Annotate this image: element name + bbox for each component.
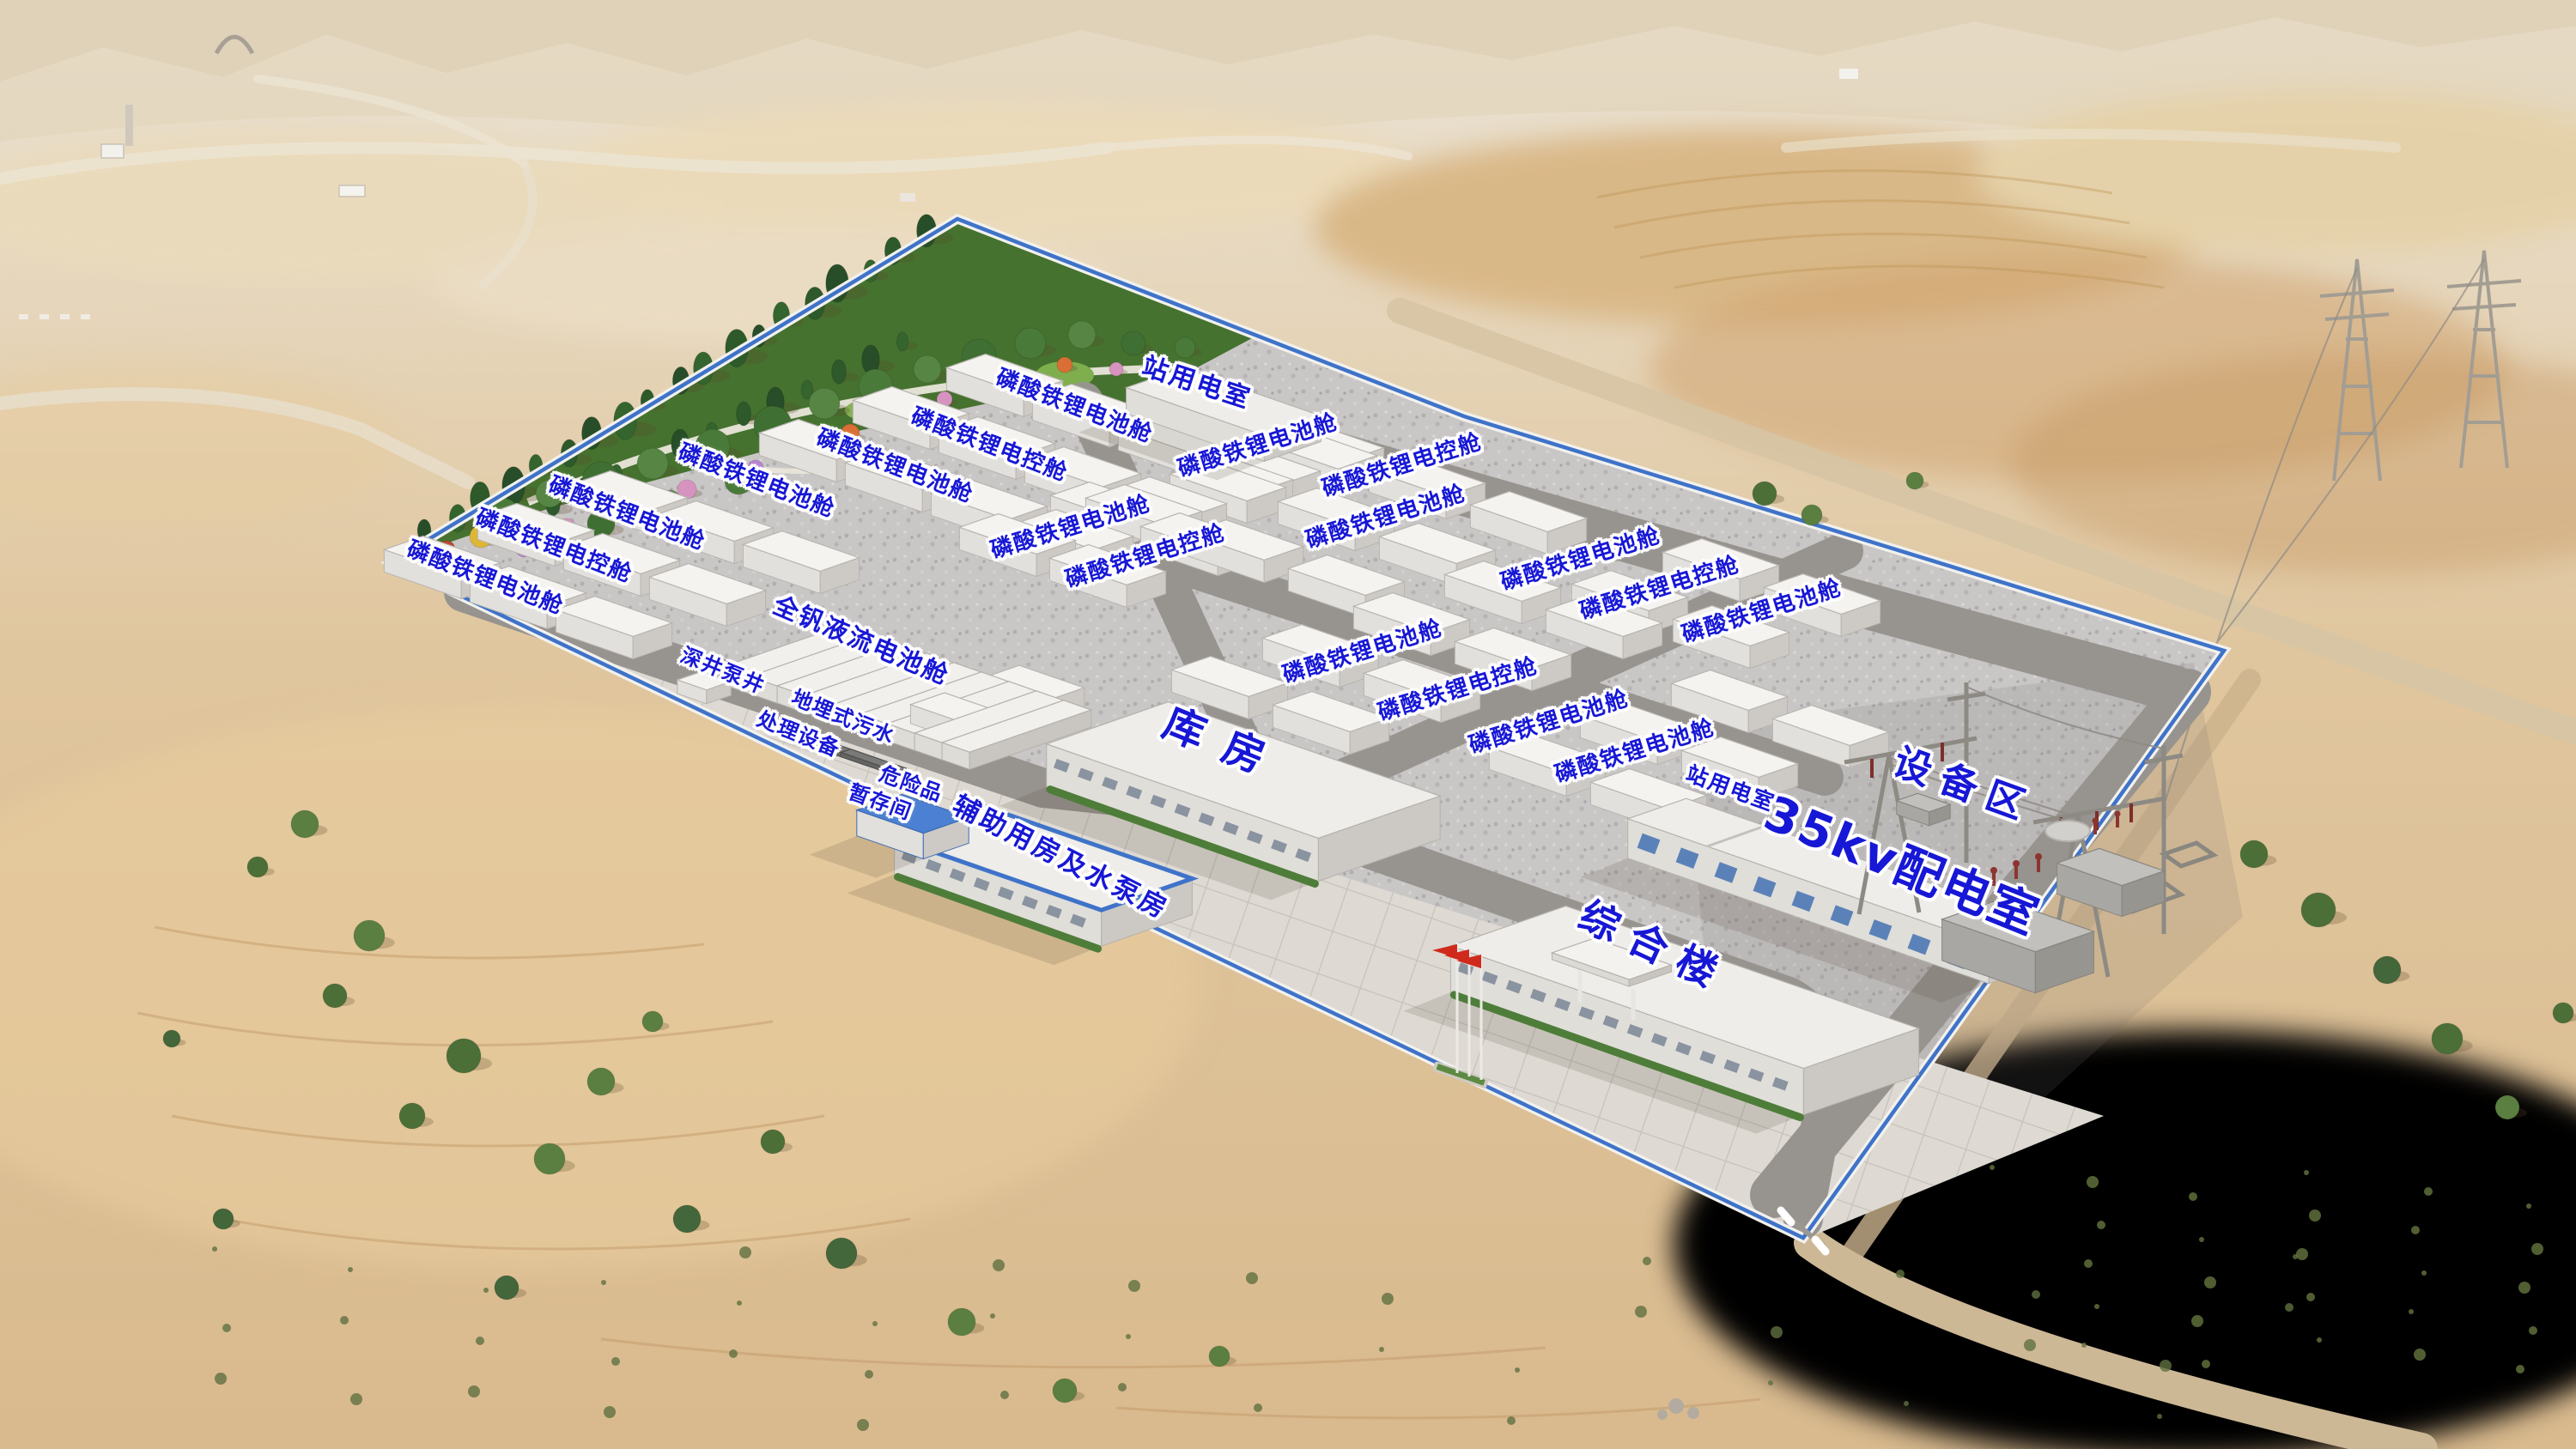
shrub	[1128, 1280, 1140, 1292]
shrub	[1254, 1404, 1262, 1412]
distant-building	[101, 144, 124, 158]
shrub	[2526, 1203, 2531, 1209]
shrub	[857, 1419, 869, 1431]
shrub	[2084, 1259, 2093, 1268]
shrub	[1768, 1380, 1773, 1385]
shrub	[993, 1259, 1005, 1271]
shrub	[2160, 1360, 2172, 1372]
shrub	[1904, 1401, 1909, 1406]
shrub	[2087, 1176, 2099, 1188]
shrub	[1896, 1270, 1905, 1278]
shrub	[2094, 1304, 2099, 1309]
shrub	[1507, 1416, 1516, 1425]
shrub	[2306, 1293, 2315, 1301]
shrub	[1126, 1334, 1131, 1339]
shrub	[1643, 1257, 1651, 1265]
shrub	[2531, 1243, 2543, 1255]
shrub	[2097, 1221, 2105, 1229]
shrub	[739, 1246, 751, 1258]
shrub	[990, 1313, 995, 1319]
shrub	[611, 1357, 620, 1366]
shrub	[604, 1406, 616, 1418]
shrub	[1246, 1272, 1258, 1284]
shrub	[2304, 1170, 2309, 1175]
shrub	[2202, 1360, 2210, 1368]
shrub	[2309, 1210, 2321, 1222]
shrub	[468, 1385, 480, 1397]
shrub	[2411, 1226, 2420, 1234]
shrub	[2157, 1414, 2162, 1419]
shrub	[601, 1280, 606, 1285]
shrub	[1635, 1306, 1647, 1318]
shrub	[1000, 1391, 1009, 1399]
shrub	[340, 1316, 349, 1325]
distant-building	[1839, 69, 1858, 79]
shrub	[2024, 1339, 2036, 1351]
shrub	[2424, 1187, 2433, 1196]
shrub	[2421, 1270, 2427, 1276]
shrub	[222, 1324, 231, 1332]
distant-building	[900, 193, 915, 202]
shrub	[2296, 1248, 2308, 1260]
site-plan-canvas	[0, 0, 2576, 1449]
shrub	[2518, 1282, 2530, 1294]
shrub	[737, 1300, 742, 1306]
shrub	[1771, 1326, 1783, 1338]
shrub	[2191, 1315, 2203, 1327]
shrub	[1379, 1347, 1384, 1352]
shrub	[2516, 1365, 2524, 1373]
shrub	[2189, 1192, 2197, 1201]
shrub	[215, 1373, 227, 1385]
shrub	[2199, 1237, 2204, 1242]
shrub	[2409, 1309, 2414, 1314]
shrub	[212, 1246, 217, 1252]
shrub	[729, 1349, 738, 1358]
shrub	[2529, 1326, 2537, 1335]
shrub	[348, 1267, 353, 1272]
shrub	[2204, 1276, 2216, 1288]
shrub	[350, 1393, 362, 1405]
shrub	[476, 1337, 484, 1345]
shrub	[865, 1370, 873, 1379]
shrub	[2317, 1337, 2322, 1343]
shrub	[2081, 1343, 2087, 1348]
distant-tower	[125, 105, 133, 146]
shrub	[872, 1321, 878, 1326]
shrub	[2032, 1290, 2040, 1299]
shrub	[483, 1288, 489, 1293]
aerial-site-rendering: 站用电室磷酸铁锂电池舱磷酸铁锂电控舱磷酸铁锂电池舱磷酸铁锂电池舱磷酸铁锂电池舱磷…	[0, 0, 2576, 1449]
shrub	[2414, 1349, 2426, 1361]
oil-tank	[2045, 821, 2090, 841]
shrub	[1515, 1367, 1520, 1373]
shrub	[2285, 1303, 2293, 1312]
shrub	[1382, 1293, 1394, 1305]
shrub	[1990, 1165, 1995, 1170]
shrub	[1118, 1383, 1127, 1391]
distant-building	[339, 185, 365, 197]
